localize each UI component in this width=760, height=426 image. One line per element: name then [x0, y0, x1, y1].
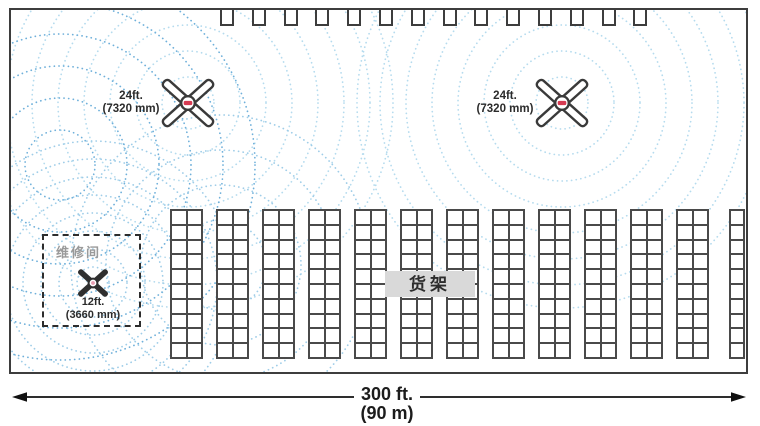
rack-cell: [171, 225, 187, 240]
fan-size-mm-text: (7320 mm): [455, 103, 555, 116]
rack-cell: [730, 210, 744, 225]
rack-cell: [279, 210, 295, 225]
rack-cell: [171, 284, 187, 299]
rack-cell: [585, 240, 601, 255]
rack-cell: [585, 225, 601, 240]
fan-hub-logo: [91, 281, 95, 285]
rack-cell: [693, 269, 709, 284]
rack-cell: [309, 269, 325, 284]
rack-cell: [647, 254, 663, 269]
fan-hub-logo: [184, 101, 193, 105]
rack-cell: [233, 240, 249, 255]
rack-cell: [263, 328, 279, 343]
rack-cell: [509, 314, 525, 329]
dock-door: [220, 10, 234, 26]
rack-cell: [217, 210, 233, 225]
rack-cell: [693, 210, 709, 225]
rack-cell: [447, 210, 463, 225]
rack-cell: [601, 343, 617, 358]
rack-cell: [730, 299, 744, 314]
rack-cell: [631, 225, 647, 240]
rack-cell: [647, 284, 663, 299]
rack-cell: [371, 284, 387, 299]
rack-cell: [677, 314, 693, 329]
rack-cell: [463, 343, 479, 358]
storage-rack: [538, 209, 571, 359]
fan-size-text: 24ft.: [81, 90, 181, 103]
rack-cell: [171, 210, 187, 225]
rack-cell: [509, 210, 525, 225]
rack-cell: [355, 269, 371, 284]
rack-cell: [730, 225, 744, 240]
repair-room-label: 维修间: [56, 242, 101, 261]
rack-cell: [355, 240, 371, 255]
rack-cell: [401, 314, 417, 329]
fan-size-text: 24ft.: [455, 90, 555, 103]
rack-cell: [263, 225, 279, 240]
rack-cell: [730, 254, 744, 269]
rack-cell: [355, 314, 371, 329]
rack-cell: [631, 269, 647, 284]
rack-cell: [693, 314, 709, 329]
storage-rack: [354, 209, 387, 359]
fan-24ft-right-label: 24ft. (7320 mm): [455, 90, 555, 116]
rack-cell: [509, 343, 525, 358]
rack-cell: [417, 254, 433, 269]
rack-cell: [447, 328, 463, 343]
rack-cell: [539, 210, 555, 225]
crossflow-arcs-a-ring: [25, 130, 95, 200]
rack-cell: [401, 225, 417, 240]
rack-cell: [601, 328, 617, 343]
rack-cell: [463, 210, 479, 225]
rack-cell: [171, 299, 187, 314]
dock-door: [284, 10, 298, 26]
fan-12ft-label: 12ft. (3660 mm): [43, 296, 143, 321]
dock-door: [602, 10, 616, 26]
rack-cell: [493, 343, 509, 358]
rack-cell: [539, 269, 555, 284]
dock-door: [570, 10, 584, 26]
rack-cell: [463, 240, 479, 255]
rack-cell: [233, 225, 249, 240]
dock-door: [347, 10, 361, 26]
fan-size-mm-text: (7320 mm): [81, 103, 181, 116]
rack-cell: [279, 343, 295, 358]
rack-cell: [279, 299, 295, 314]
rack-cell: [585, 284, 601, 299]
rack-cell: [417, 343, 433, 358]
rack-cell: [647, 328, 663, 343]
rack-cell: [539, 225, 555, 240]
rack-cell: [730, 314, 744, 329]
rack-cell: [279, 314, 295, 329]
rack-cell: [631, 254, 647, 269]
rack-cell: [417, 314, 433, 329]
dock-door: [252, 10, 266, 26]
rack-cell: [401, 328, 417, 343]
rack-cell: [631, 343, 647, 358]
rack-cell: [693, 299, 709, 314]
rack-cell: [371, 240, 387, 255]
rack-cell: [325, 269, 341, 284]
rack-cell: [325, 210, 341, 225]
rack-cell: [309, 299, 325, 314]
rack-cell: [585, 343, 601, 358]
storage-rack: [262, 209, 295, 359]
rack-cell: [631, 328, 647, 343]
rack-cell: [493, 269, 509, 284]
rack-cell: [555, 328, 571, 343]
rack-cell: [509, 254, 525, 269]
rack-cell: [279, 240, 295, 255]
rack-cell: [279, 225, 295, 240]
rack-cell: [417, 240, 433, 255]
rack-cell: [279, 284, 295, 299]
rack-cell: [555, 284, 571, 299]
rack-cell: [217, 254, 233, 269]
rack-cell: [371, 254, 387, 269]
rack-cell: [631, 299, 647, 314]
rack-cell: [539, 299, 555, 314]
rack-cell: [217, 328, 233, 343]
rack-cell: [555, 210, 571, 225]
rack-cell: [371, 210, 387, 225]
rack-cell: [463, 225, 479, 240]
rack-cell: [631, 284, 647, 299]
rack-cell: [401, 299, 417, 314]
fan-hub-logo: [558, 101, 567, 105]
rack-cell: [493, 284, 509, 299]
arrowhead-left: [12, 392, 27, 401]
rack-cell: [631, 210, 647, 225]
rack-cell: [233, 328, 249, 343]
rack-cell: [539, 343, 555, 358]
rack-cell: [677, 254, 693, 269]
rack-cell: [401, 343, 417, 358]
rack-cell: [279, 254, 295, 269]
rack-cell: [371, 299, 387, 314]
rack-cell: [279, 269, 295, 284]
rack-cell: [539, 254, 555, 269]
rack-cell: [601, 284, 617, 299]
rack-cell: [601, 240, 617, 255]
rack-cell: [493, 240, 509, 255]
rack-cell: [585, 254, 601, 269]
rack-cell: [263, 269, 279, 284]
dock-door: [443, 10, 457, 26]
rack-cell: [647, 299, 663, 314]
building-width-dimension: 300 ft. (90 m): [322, 385, 452, 423]
rack-cell: [279, 328, 295, 343]
rack-cell: [187, 210, 203, 225]
dimension-feet-text: 300 ft.: [354, 385, 420, 404]
rack-cell: [555, 314, 571, 329]
rack-cell: [677, 284, 693, 299]
rack-cell: [355, 284, 371, 299]
rack-cell: [447, 299, 463, 314]
rack-cell: [509, 299, 525, 314]
rack-cell: [585, 269, 601, 284]
rack-cell: [509, 240, 525, 255]
rack-cell: [233, 254, 249, 269]
rack-cell: [677, 210, 693, 225]
rack-cell: [647, 210, 663, 225]
rack-cell: [509, 284, 525, 299]
crossflow-arcs-a-ring: [11, 98, 127, 232]
rack-cell: [601, 254, 617, 269]
rack-cell: [263, 314, 279, 329]
rack-cell: [187, 314, 203, 329]
rack-cell: [401, 240, 417, 255]
rack-cell: [355, 210, 371, 225]
rack-cell: [677, 328, 693, 343]
rack-cell: [693, 225, 709, 240]
rack-cell: [171, 343, 187, 358]
rack-cell: [539, 314, 555, 329]
fan-size-mm-text: (3660 mm): [43, 309, 143, 322]
dock-door: [474, 10, 488, 26]
rack-cell: [677, 240, 693, 255]
rack-cell: [355, 343, 371, 358]
rack-cell: [601, 269, 617, 284]
rack-cell: [585, 328, 601, 343]
dock-door: [633, 10, 647, 26]
rack-cell: [463, 328, 479, 343]
rack-cell: [677, 299, 693, 314]
rack-cell: [187, 240, 203, 255]
rack-cell: [447, 343, 463, 358]
rack-cell: [187, 225, 203, 240]
fan-24ft-left-label: 24ft. (7320 mm): [81, 90, 181, 116]
rack-cell: [601, 299, 617, 314]
rack-cell: [677, 225, 693, 240]
rack-cell: [539, 240, 555, 255]
rack-cell: [647, 343, 663, 358]
rack-cell: [555, 254, 571, 269]
rack-cell: [187, 299, 203, 314]
storage-rack: [729, 209, 745, 359]
rack-cell: [187, 254, 203, 269]
storage-rack: [170, 209, 203, 359]
rack-cell: [631, 240, 647, 255]
storage-rack: [584, 209, 617, 359]
rack-cell: [325, 328, 341, 343]
rack-cell: [647, 240, 663, 255]
rack-cell: [585, 210, 601, 225]
rack-cell: [417, 210, 433, 225]
rack-cell: [509, 328, 525, 343]
rack-cell: [309, 343, 325, 358]
rack-cell: [509, 269, 525, 284]
rack-cell: [263, 343, 279, 358]
rack-cell: [493, 225, 509, 240]
rack-cell: [677, 343, 693, 358]
rack-cell: [355, 299, 371, 314]
rack-cell: [730, 328, 744, 343]
rack-cell: [647, 269, 663, 284]
rack-cell: [647, 225, 663, 240]
rack-cell: [325, 343, 341, 358]
rack-cell: [463, 254, 479, 269]
rack-cell: [730, 240, 744, 255]
rack-cell: [371, 225, 387, 240]
rack-cell: [187, 269, 203, 284]
warehouse-fan-layout-diagram: 货架 维修间: [0, 0, 760, 426]
fan-size-text: 12ft.: [43, 296, 143, 309]
rack-cell: [693, 328, 709, 343]
storage-rack: [492, 209, 525, 359]
rack-cell: [447, 314, 463, 329]
rack-cell: [217, 225, 233, 240]
rack-cell: [730, 269, 744, 284]
rack-cell: [171, 269, 187, 284]
storage-rack: [216, 209, 249, 359]
rack-cell: [309, 284, 325, 299]
rack-cell: [417, 225, 433, 240]
rack-cell: [171, 240, 187, 255]
rack-cell: [263, 240, 279, 255]
rack-cell: [463, 299, 479, 314]
rack-cell: [233, 210, 249, 225]
rack-cell: [233, 299, 249, 314]
rack-cell: [730, 284, 744, 299]
rack-cell: [263, 299, 279, 314]
dock-door: [538, 10, 552, 26]
rack-cell: [693, 240, 709, 255]
dock-door: [315, 10, 329, 26]
rack-cell: [493, 328, 509, 343]
rack-cell: [371, 269, 387, 284]
rack-cell: [187, 284, 203, 299]
rack-cell: [493, 210, 509, 225]
rack-cell: [693, 284, 709, 299]
rack-cell: [371, 328, 387, 343]
dock-door: [506, 10, 520, 26]
rack-cell: [463, 314, 479, 329]
rack-cell: [585, 314, 601, 329]
rack-cell: [555, 299, 571, 314]
dock-door: [411, 10, 425, 26]
rack-cell: [217, 284, 233, 299]
rack-cell: [217, 240, 233, 255]
rack-cell: [493, 314, 509, 329]
rack-cell: [417, 299, 433, 314]
rack-cell: [309, 254, 325, 269]
rack-cell: [631, 314, 647, 329]
rack-cell: [371, 343, 387, 358]
rack-cell: [187, 328, 203, 343]
rack-cell: [585, 299, 601, 314]
rack-cell: [309, 328, 325, 343]
rack-cell: [309, 240, 325, 255]
rack-cell: [647, 314, 663, 329]
rack-cell: [447, 240, 463, 255]
rack-cell: [233, 343, 249, 358]
rack-cell: [217, 343, 233, 358]
rack-cell: [401, 254, 417, 269]
rack-cell: [325, 284, 341, 299]
rack-cell: [539, 328, 555, 343]
rack-cell: [233, 314, 249, 329]
rack-cell: [677, 269, 693, 284]
arrowhead-right: [731, 392, 746, 401]
rack-cell: [325, 299, 341, 314]
rack-cell: [217, 269, 233, 284]
rack-cell: [309, 210, 325, 225]
rack-cell: [171, 254, 187, 269]
rack-cell: [417, 328, 433, 343]
rack-cell: [493, 299, 509, 314]
rack-cell: [171, 314, 187, 329]
rack-cell: [233, 284, 249, 299]
rack-cell: [325, 240, 341, 255]
rack-cell: [217, 314, 233, 329]
rack-cell: [325, 254, 341, 269]
rack-cell: [187, 343, 203, 358]
rack-cell: [539, 284, 555, 299]
rack-cell: [601, 225, 617, 240]
rack-cell: [309, 314, 325, 329]
rack-cell: [355, 225, 371, 240]
rack-cell: [309, 225, 325, 240]
rack-cell: [325, 314, 341, 329]
rack-cell: [263, 254, 279, 269]
rack-cell: [493, 254, 509, 269]
rack-cell: [355, 254, 371, 269]
rack-cell: [447, 254, 463, 269]
rack-cell: [601, 314, 617, 329]
rack-cell: [263, 284, 279, 299]
rack-cell: [555, 343, 571, 358]
storage-rack: [676, 209, 709, 359]
dimension-meters-text: (90 m): [322, 404, 452, 423]
rack-cell: [601, 210, 617, 225]
rack-cell: [263, 210, 279, 225]
rack-cell: [555, 225, 571, 240]
rack-cell: [401, 210, 417, 225]
storage-rack: [630, 209, 663, 359]
rack-cell: [371, 314, 387, 329]
rack-cell: [217, 299, 233, 314]
rack-cell: [325, 225, 341, 240]
storage-rack: [308, 209, 341, 359]
rack-cell: [693, 254, 709, 269]
racks-label: 货架: [385, 271, 475, 297]
rack-cell: [555, 240, 571, 255]
rack-cell: [171, 328, 187, 343]
rack-cell: [693, 343, 709, 358]
rack-cell: [730, 343, 744, 358]
rack-cell: [447, 225, 463, 240]
dock-door: [379, 10, 393, 26]
rack-cell: [355, 328, 371, 343]
rack-cell: [555, 269, 571, 284]
building-outline: 货架 维修间: [9, 8, 748, 374]
rack-cell: [233, 269, 249, 284]
rack-cell: [509, 225, 525, 240]
